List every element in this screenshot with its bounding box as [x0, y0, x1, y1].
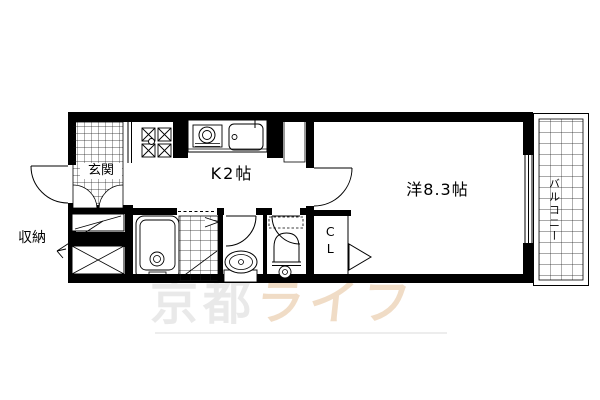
balcony-tile-floor — [539, 119, 583, 280]
closet-label: CL — [323, 221, 337, 261]
bathroom-folding-door — [177, 208, 217, 215]
storage-closet — [72, 214, 124, 231]
kitchen-counter — [188, 117, 267, 152]
balcony-area — [534, 114, 589, 286]
room-door-swing — [314, 168, 352, 206]
washbasin-door-swing — [226, 216, 256, 246]
western-room-label: 洋8.3帖 — [385, 182, 490, 199]
wash-basin — [224, 251, 257, 282]
front-door-swing — [31, 166, 68, 203]
floorplan-drawing — [0, 0, 600, 400]
meter-box — [72, 246, 124, 274]
balcony-label: バルコニー — [548, 155, 560, 265]
kitchen-label: K2帖 — [192, 166, 272, 183]
floorplan: 京都ライフ — [0, 0, 600, 400]
storage-label: 収納 — [8, 231, 56, 246]
bathtub — [136, 216, 179, 280]
washing-machine-pan — [142, 128, 171, 157]
bathroom-tile-floor — [179, 216, 219, 281]
closet-door-triangle — [349, 244, 371, 270]
entrance-label: 玄関 — [80, 163, 122, 179]
refrigerator-space — [284, 118, 305, 162]
